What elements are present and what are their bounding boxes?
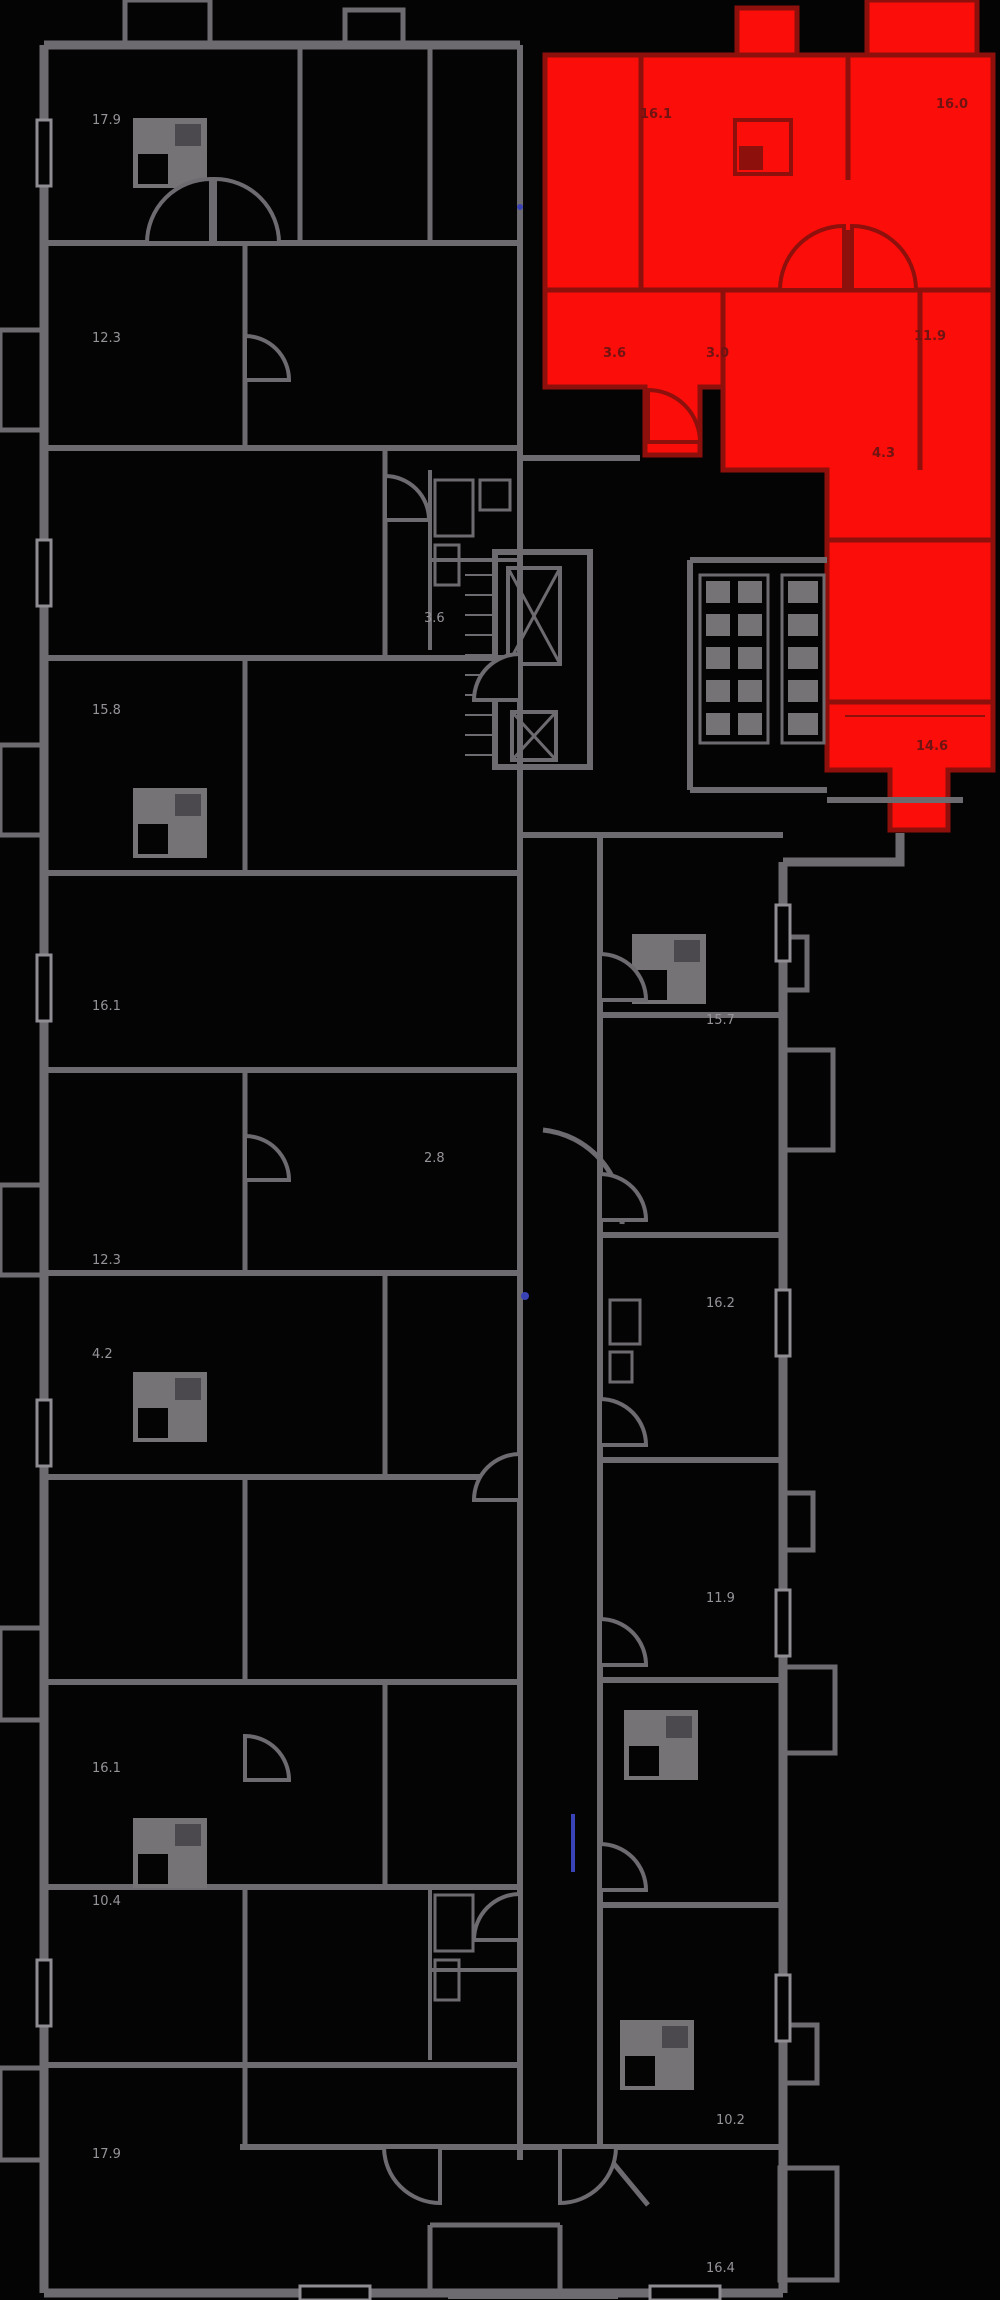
window-icon: [300, 2286, 370, 2300]
window-icon: [37, 120, 51, 186]
kitchen-icon: [133, 118, 207, 188]
blue-marker: [571, 1814, 575, 1872]
room-area-label: 10.2: [716, 2113, 745, 2128]
selected-room-area-label: 16.0: [936, 97, 968, 112]
room-area-label: 16.4: [706, 2261, 735, 2276]
window-icon: [776, 1975, 790, 2041]
floorplan-stage: 17.912.315.816.112.34.216.110.417.93.62.…: [0, 0, 1000, 2300]
selected-room-area-label: 14.6: [916, 739, 948, 754]
selected-room-area-label: 4.3: [872, 446, 895, 461]
room-area-label: 17.9: [92, 2147, 121, 2162]
window-icon: [650, 2286, 720, 2300]
room-area-label: 12.3: [92, 331, 121, 346]
room-area-label: 16.2: [706, 1296, 735, 1311]
room-area-label: 17.9: [92, 113, 121, 128]
window-icon: [37, 1960, 51, 2026]
window-icon: [776, 1290, 790, 1356]
window-icon: [37, 955, 51, 1021]
room-area-label: 4.2: [92, 1347, 113, 1362]
kitchen-icon: [620, 2020, 694, 2090]
selected-room-area-label: 3.6: [603, 346, 626, 361]
room-area-label: 15.7: [706, 1013, 735, 1028]
window-icon: [776, 905, 790, 961]
kitchen-icon: [133, 1372, 207, 1442]
room-area-label: 15.8: [92, 703, 121, 718]
selected-room-area-label: 16.1: [640, 107, 672, 122]
window-icon: [776, 1590, 790, 1656]
window-icon: [37, 1400, 51, 1466]
room-area-label: 16.1: [92, 999, 121, 1014]
window-icon: [37, 540, 51, 606]
room-area-label: 11.9: [706, 1591, 735, 1606]
room-area-label: 3.6: [424, 611, 445, 626]
blue-marker: [517, 204, 523, 210]
selected-apartment-balcony: [867, 0, 977, 55]
floorplan-svg: 17.912.315.816.112.34.216.110.417.93.62.…: [0, 0, 1000, 2300]
room-area-label: 10.4: [92, 1894, 121, 1909]
selected-room-area-label: 11.9: [914, 329, 946, 344]
blue-marker: [521, 1292, 529, 1300]
kitchen-icon: [133, 788, 207, 858]
kitchen-icon: [624, 1710, 698, 1780]
room-area-label: 2.8: [424, 1151, 445, 1166]
kitchen-icon: [133, 1818, 207, 1888]
room-area-label: 12.3: [92, 1253, 121, 1268]
selected-apartment-balcony: [737, 8, 797, 55]
selected-room-area-label: 3.0: [706, 346, 729, 361]
room-area-label: 16.1: [92, 1761, 121, 1776]
vent-grid-icon: [782, 575, 824, 743]
